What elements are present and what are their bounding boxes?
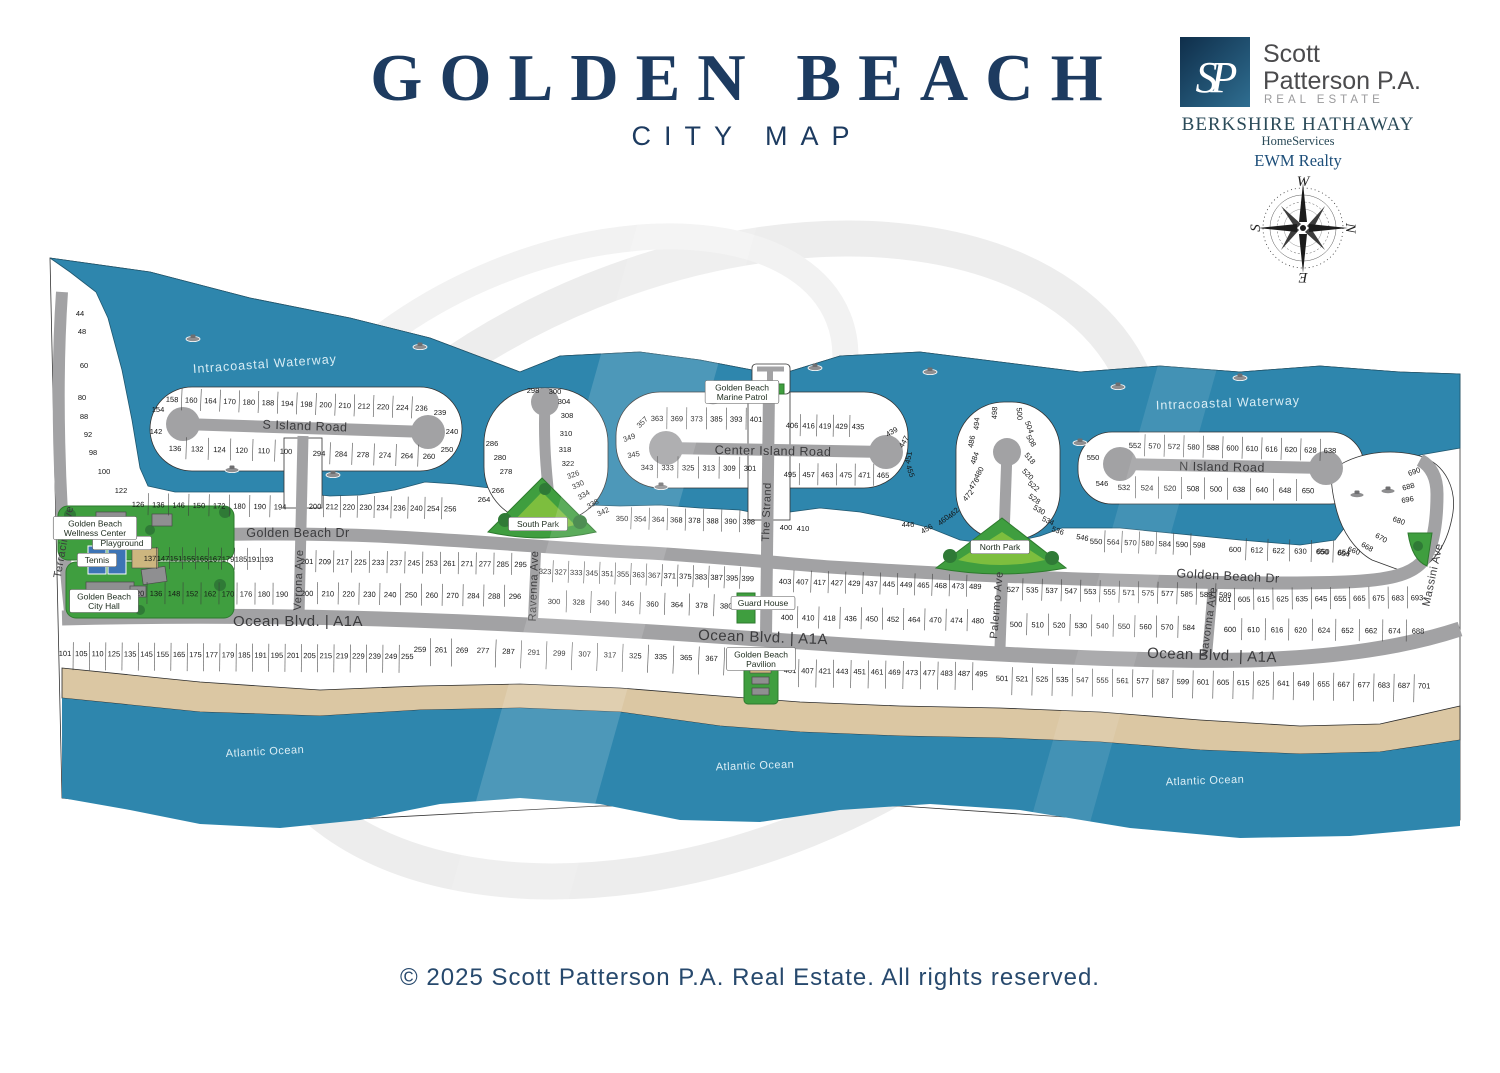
- svg-text:125: 125: [108, 649, 121, 658]
- svg-text:313: 313: [703, 463, 716, 472]
- svg-text:175: 175: [189, 650, 202, 659]
- svg-text:375: 375: [679, 572, 692, 581]
- lot-number: 264: [478, 495, 491, 504]
- svg-text:616: 616: [1265, 444, 1278, 453]
- svg-text:527: 527: [1007, 585, 1020, 594]
- svg-text:Golden Beach: Golden Beach: [77, 591, 131, 601]
- svg-text:270: 270: [446, 591, 459, 600]
- svg-text:616: 616: [1271, 625, 1284, 634]
- logo-monogram: SP: [1196, 53, 1237, 102]
- map-label-guard-house: Guard House: [731, 596, 795, 610]
- svg-text:655: 655: [1317, 680, 1330, 689]
- svg-text:198: 198: [300, 399, 313, 408]
- svg-text:407: 407: [801, 666, 814, 675]
- svg-text:461: 461: [871, 667, 884, 676]
- svg-text:135: 135: [124, 650, 137, 659]
- svg-text:598: 598: [1193, 540, 1206, 549]
- svg-text:155: 155: [157, 650, 170, 659]
- svg-text:212: 212: [358, 401, 371, 410]
- svg-text:190: 190: [253, 502, 266, 511]
- map-label-golden-beach-marine-patrol: Golden BeachMarine Patrol: [705, 381, 779, 404]
- svg-text:240: 240: [410, 504, 423, 513]
- brokerage-logo: SP Scott Patterson P.A. REAL ESTATE BERK…: [1180, 37, 1421, 170]
- logo-tagline: REAL ESTATE: [1264, 94, 1384, 106]
- svg-text:Golden Beach Dr: Golden Beach Dr: [246, 526, 349, 540]
- svg-text:170: 170: [223, 397, 236, 406]
- svg-text:152: 152: [186, 589, 199, 598]
- svg-text:295: 295: [514, 560, 527, 569]
- svg-text:435: 435: [852, 422, 865, 431]
- svg-text:188: 188: [262, 398, 275, 407]
- svg-text:600: 600: [1226, 443, 1239, 452]
- svg-text:274: 274: [379, 451, 392, 460]
- svg-text:473: 473: [905, 668, 918, 677]
- svg-text:160: 160: [185, 395, 198, 404]
- svg-text:Golden Beach: Golden Beach: [734, 649, 788, 659]
- svg-text:217: 217: [336, 557, 349, 566]
- svg-text:S Island Road: S Island Road: [262, 418, 347, 435]
- svg-text:255: 255: [401, 652, 414, 661]
- lot-number: 60: [80, 361, 88, 370]
- svg-text:421: 421: [819, 666, 832, 675]
- svg-text:610: 610: [1247, 625, 1260, 634]
- svg-text:521: 521: [1016, 674, 1029, 683]
- svg-text:445: 445: [882, 580, 895, 589]
- compass-south: S: [1248, 224, 1264, 232]
- svg-text:City Hall: City Hall: [88, 601, 120, 611]
- lot-number: 98: [89, 448, 97, 457]
- svg-text:101: 101: [59, 649, 72, 658]
- logo-name-2: Patterson P.A.: [1263, 67, 1421, 95]
- svg-text:648: 648: [1279, 486, 1292, 495]
- svg-text:136: 136: [152, 500, 165, 509]
- svg-text:390: 390: [724, 517, 737, 526]
- svg-text:164: 164: [204, 396, 217, 405]
- svg-text:150: 150: [193, 501, 206, 510]
- copyright-text: © 2025 Scott Patterson P.A. Real Estate.…: [400, 964, 1100, 991]
- svg-text:600: 600: [1224, 625, 1237, 634]
- lot-number: 92: [84, 430, 92, 439]
- svg-text:587: 587: [1156, 677, 1169, 686]
- svg-text:667: 667: [1337, 680, 1350, 689]
- svg-text:191: 191: [254, 651, 267, 660]
- svg-text:105: 105: [75, 649, 88, 658]
- svg-text:378: 378: [695, 601, 708, 610]
- svg-text:465: 465: [877, 471, 890, 480]
- svg-text:365: 365: [680, 653, 693, 662]
- svg-text:489: 489: [969, 582, 982, 591]
- map-label-verona-ave: Verona Ave: [292, 549, 306, 610]
- svg-text:487: 487: [958, 669, 971, 678]
- svg-text:233: 233: [372, 558, 385, 567]
- svg-text:501: 501: [996, 674, 1009, 683]
- lot-number: 80: [78, 393, 86, 402]
- svg-text:605: 605: [1217, 678, 1230, 687]
- svg-text:200: 200: [319, 400, 332, 409]
- svg-text:630: 630: [1294, 547, 1307, 556]
- svg-text:167: 167: [209, 555, 222, 564]
- svg-text:195: 195: [271, 651, 284, 660]
- svg-text:200: 200: [309, 502, 322, 511]
- svg-text:288: 288: [488, 592, 501, 601]
- svg-text:219: 219: [336, 651, 349, 660]
- svg-text:120: 120: [235, 446, 248, 455]
- svg-text:418: 418: [823, 614, 836, 623]
- svg-text:Center Island Road: Center Island Road: [715, 443, 832, 459]
- svg-text:287: 287: [502, 647, 515, 656]
- svg-text:500: 500: [1210, 484, 1223, 493]
- svg-text:185: 185: [235, 555, 248, 564]
- svg-text:443: 443: [836, 667, 849, 676]
- svg-text:285: 285: [496, 560, 509, 569]
- svg-text:136: 136: [150, 589, 163, 598]
- map-label-north-park: North Park: [971, 540, 1030, 554]
- pavilion-building: [752, 677, 769, 684]
- svg-text:645: 645: [1315, 594, 1328, 603]
- svg-text:220: 220: [343, 502, 356, 511]
- svg-text:395: 395: [726, 573, 739, 582]
- svg-text:193: 193: [261, 555, 274, 564]
- svg-text:124: 124: [213, 445, 226, 454]
- svg-text:209: 209: [319, 557, 332, 566]
- lot-number: 88: [80, 412, 88, 421]
- svg-text:620: 620: [1294, 626, 1307, 635]
- center-island-culdesac-east: [869, 435, 903, 469]
- s-island-culdesac-east: [411, 415, 445, 449]
- svg-text:577: 577: [1161, 589, 1174, 598]
- svg-text:205: 205: [303, 651, 316, 660]
- city-map: 1581601641701801881941982002102122202242…: [0, 0, 1500, 1073]
- svg-text:403: 403: [779, 577, 792, 586]
- svg-text:628: 628: [1304, 445, 1317, 454]
- svg-text:688: 688: [1412, 627, 1425, 636]
- svg-text:535: 535: [1026, 585, 1039, 594]
- svg-text:457: 457: [802, 470, 815, 479]
- svg-text:547: 547: [1065, 586, 1078, 595]
- svg-text:The Strand: The Strand: [760, 482, 774, 542]
- svg-text:225: 225: [354, 558, 367, 567]
- svg-text:451: 451: [853, 667, 866, 676]
- svg-text:151: 151: [170, 554, 183, 563]
- svg-text:599: 599: [1177, 677, 1190, 686]
- svg-text:271: 271: [461, 559, 474, 568]
- svg-text:675: 675: [1372, 594, 1385, 603]
- svg-text:683: 683: [1378, 681, 1391, 690]
- svg-text:110: 110: [92, 649, 104, 658]
- lot-number: 546: [1096, 479, 1109, 488]
- lot-number: 308: [561, 411, 574, 420]
- svg-text:210: 210: [322, 589, 335, 598]
- svg-text:259: 259: [414, 645, 427, 654]
- svg-text:284: 284: [467, 591, 480, 600]
- svg-text:277: 277: [479, 559, 492, 568]
- svg-text:230: 230: [359, 503, 372, 512]
- svg-text:294: 294: [313, 449, 326, 458]
- svg-text:535: 535: [1056, 675, 1069, 684]
- svg-text:212: 212: [326, 502, 339, 511]
- svg-text:470: 470: [929, 615, 942, 624]
- palermo-culdesac: [993, 438, 1021, 466]
- svg-text:463: 463: [821, 470, 834, 479]
- lot-number: 122: [115, 486, 128, 495]
- svg-text:387: 387: [710, 573, 723, 582]
- svg-text:701: 701: [1418, 681, 1431, 690]
- svg-text:335: 335: [654, 652, 667, 661]
- logo-name-1: Scott: [1263, 40, 1320, 68]
- svg-text:640: 640: [1256, 485, 1269, 494]
- lot-number: 410: [797, 524, 810, 533]
- page: 1581601641701801881941982002102122202242…: [0, 0, 1500, 1073]
- svg-text:429: 429: [835, 422, 848, 431]
- svg-text:260: 260: [423, 452, 436, 461]
- lot-number: 318: [559, 445, 572, 454]
- svg-text:277: 277: [477, 646, 490, 655]
- svg-text:146: 146: [172, 501, 185, 510]
- svg-text:437: 437: [865, 579, 878, 588]
- lot-number: 286: [486, 439, 499, 448]
- svg-text:417: 417: [813, 578, 826, 587]
- svg-text:210: 210: [338, 401, 351, 410]
- svg-text:416: 416: [802, 421, 815, 430]
- lot-number: 100: [98, 467, 111, 476]
- svg-text:165: 165: [196, 554, 209, 563]
- svg-text:296: 296: [509, 592, 522, 601]
- svg-text:641: 641: [1277, 679, 1290, 688]
- lot-number: 280: [494, 453, 507, 462]
- svg-text:398: 398: [742, 517, 755, 526]
- lot-number: 154: [152, 405, 165, 414]
- lot-number: 250: [441, 445, 454, 454]
- map-label-golden-beach-pavilion: Golden BeachPavilion: [727, 648, 796, 671]
- svg-text:649: 649: [1297, 679, 1310, 688]
- svg-text:469: 469: [888, 668, 901, 677]
- svg-text:136: 136: [169, 444, 182, 453]
- svg-text:662: 662: [1365, 626, 1378, 635]
- svg-text:284: 284: [335, 449, 348, 458]
- svg-text:190: 190: [276, 590, 289, 599]
- s-island-culdesac-west: [166, 407, 200, 441]
- lot-number: 298: [527, 386, 540, 395]
- lot-number: 266: [492, 486, 505, 495]
- svg-text:Golden Beach: Golden Beach: [715, 382, 769, 392]
- svg-text:100: 100: [280, 447, 293, 456]
- lot-number: 650: [1317, 546, 1330, 556]
- svg-text:464: 464: [908, 615, 921, 624]
- svg-text:126: 126: [132, 500, 145, 509]
- svg-text:612: 612: [1250, 545, 1263, 554]
- svg-text:249: 249: [385, 652, 398, 661]
- svg-text:500: 500: [1010, 620, 1023, 629]
- svg-text:Ocean Blvd. | A1A: Ocean Blvd. | A1A: [233, 613, 363, 630]
- svg-text:162: 162: [204, 589, 217, 598]
- map-label-center-island-road: Center Island Road: [715, 443, 832, 459]
- compass-north: N: [1342, 222, 1358, 234]
- svg-text:471: 471: [858, 471, 871, 480]
- map-label-golden-beach-city-hall: Golden BeachCity Hall: [70, 590, 139, 613]
- svg-text:145: 145: [140, 650, 153, 659]
- svg-text:615: 615: [1237, 678, 1250, 687]
- svg-text:601: 601: [1197, 677, 1210, 686]
- svg-text:236: 236: [415, 403, 428, 412]
- svg-text:Golden Beach: Golden Beach: [68, 518, 122, 528]
- svg-text:Verona Ave: Verona Ave: [292, 549, 306, 610]
- svg-text:364: 364: [671, 600, 684, 609]
- svg-text:452: 452: [887, 615, 900, 624]
- svg-text:158: 158: [166, 395, 179, 404]
- svg-text:665: 665: [1353, 594, 1366, 603]
- svg-text:172: 172: [213, 501, 226, 510]
- svg-text:674: 674: [1388, 626, 1401, 635]
- svg-text:215: 215: [320, 651, 333, 660]
- lot-number: 239: [434, 408, 447, 417]
- lot-number: 240: [446, 427, 459, 436]
- brand-ewm: EWM Realty: [1254, 151, 1342, 170]
- svg-text:254: 254: [427, 504, 440, 513]
- svg-text:605: 605: [1238, 595, 1251, 604]
- svg-text:388: 388: [706, 516, 719, 525]
- svg-text:201: 201: [287, 651, 300, 660]
- svg-text:577: 577: [1136, 676, 1149, 685]
- svg-text:147: 147: [157, 554, 170, 563]
- svg-text:261: 261: [435, 645, 448, 654]
- svg-text:380: 380: [720, 601, 733, 610]
- svg-text:Marine Patrol: Marine Patrol: [717, 392, 768, 402]
- svg-text:176: 176: [240, 590, 253, 599]
- svg-text:191: 191: [248, 555, 261, 564]
- svg-text:468: 468: [934, 581, 947, 590]
- map-label-the-strand: The Strand: [760, 482, 774, 542]
- svg-text:385: 385: [710, 414, 723, 423]
- lot-number: 304: [558, 397, 571, 406]
- svg-text:367: 367: [705, 654, 718, 663]
- svg-text:245: 245: [408, 558, 421, 567]
- lot-number: 44: [76, 309, 84, 318]
- brand-berkshire: BERKSHIRE HATHAWAY: [1182, 114, 1415, 135]
- svg-text:624: 624: [1318, 626, 1331, 635]
- svg-text:650: 650: [1302, 486, 1315, 495]
- lot-number: 48: [78, 327, 86, 336]
- svg-text:378: 378: [688, 516, 701, 525]
- svg-text:165: 165: [173, 650, 186, 659]
- svg-text:155: 155: [183, 554, 196, 563]
- svg-text:620: 620: [1285, 445, 1298, 454]
- svg-text:260: 260: [426, 591, 439, 600]
- map-label-s-island-road: S Island Road: [262, 418, 347, 435]
- compass-west: W: [1297, 174, 1311, 190]
- svg-text:383: 383: [695, 572, 708, 581]
- svg-text:683: 683: [1391, 593, 1404, 602]
- svg-text:687: 687: [1398, 681, 1411, 690]
- svg-text:256: 256: [444, 504, 457, 513]
- svg-text:510: 510: [1031, 620, 1044, 629]
- svg-text:371: 371: [663, 571, 676, 580]
- svg-text:180: 180: [233, 502, 246, 511]
- svg-text:237: 237: [390, 558, 403, 567]
- svg-text:Tennis: Tennis: [85, 555, 110, 565]
- svg-text:234: 234: [376, 503, 389, 512]
- svg-text:655: 655: [1334, 594, 1347, 603]
- svg-text:615: 615: [1257, 595, 1270, 604]
- map-label-tennis: Tennis: [77, 553, 116, 567]
- svg-text:N Island Road: N Island Road: [1179, 459, 1265, 474]
- brand-homeservices: HomeServices: [1262, 134, 1335, 148]
- svg-text:264: 264: [401, 451, 414, 460]
- svg-text:610: 610: [1246, 444, 1259, 453]
- svg-text:635: 635: [1295, 594, 1308, 603]
- svg-text:410: 410: [802, 613, 815, 622]
- map-label-golden-beach-wellness-center: Golden BeachWellness Center: [53, 517, 137, 540]
- svg-text:236: 236: [393, 503, 406, 512]
- lot-number: 446: [902, 520, 915, 529]
- svg-text:399: 399: [741, 574, 754, 583]
- svg-text:179: 179: [222, 555, 235, 564]
- svg-text:220: 220: [377, 402, 390, 411]
- svg-text:625: 625: [1276, 594, 1289, 603]
- svg-text:652: 652: [1341, 626, 1354, 635]
- svg-text:401: 401: [750, 415, 763, 424]
- lot-number: 500: [1014, 407, 1024, 420]
- svg-text:427: 427: [831, 578, 844, 587]
- svg-text:406: 406: [786, 421, 799, 430]
- svg-text:177: 177: [205, 650, 218, 659]
- svg-text:148: 148: [168, 589, 181, 598]
- map-label-golden-beach-dr: Golden Beach Dr: [246, 526, 349, 540]
- svg-text:480: 480: [971, 616, 984, 625]
- svg-text:436: 436: [844, 614, 857, 623]
- svg-text:278: 278: [357, 450, 370, 459]
- svg-text:625: 625: [1257, 678, 1270, 687]
- lot-number: 278: [500, 467, 513, 476]
- svg-text:194: 194: [274, 502, 287, 511]
- svg-text:474: 474: [950, 616, 963, 625]
- svg-text:638: 638: [1233, 485, 1246, 494]
- svg-text:393: 393: [730, 415, 743, 424]
- svg-text:550: 550: [1090, 537, 1103, 546]
- svg-text:132: 132: [191, 444, 204, 453]
- svg-text:473: 473: [952, 581, 965, 590]
- svg-text:465: 465: [917, 580, 930, 589]
- n-island-culdesac-east: [1309, 451, 1343, 485]
- svg-text:450: 450: [865, 614, 878, 623]
- svg-text:495: 495: [975, 669, 988, 678]
- svg-text:419: 419: [819, 421, 832, 430]
- svg-text:261: 261: [443, 559, 456, 568]
- svg-text:477: 477: [923, 668, 936, 677]
- svg-text:638: 638: [1324, 446, 1337, 455]
- svg-text:400: 400: [781, 613, 794, 622]
- svg-text:475: 475: [840, 470, 853, 479]
- svg-text:179: 179: [222, 650, 235, 659]
- lot-number: 310: [560, 429, 573, 438]
- svg-text:508: 508: [1187, 484, 1200, 493]
- svg-text:Guard House: Guard House: [738, 598, 789, 608]
- lot-number: 550: [1087, 453, 1100, 462]
- compass-east: E: [1298, 269, 1308, 285]
- svg-text:224: 224: [396, 403, 409, 412]
- svg-text:590: 590: [1176, 540, 1189, 549]
- svg-text:229: 229: [352, 652, 365, 661]
- svg-text:Pavilion: Pavilion: [746, 659, 776, 669]
- svg-text:495: 495: [784, 470, 797, 479]
- svg-text:269: 269: [456, 646, 469, 655]
- svg-text:520: 520: [1053, 621, 1066, 630]
- svg-text:601: 601: [1219, 595, 1232, 604]
- svg-text:600: 600: [1229, 545, 1242, 554]
- svg-text:250: 250: [405, 590, 418, 599]
- svg-text:180: 180: [258, 590, 271, 599]
- svg-text:185: 185: [238, 651, 251, 660]
- svg-text:622: 622: [1272, 546, 1285, 555]
